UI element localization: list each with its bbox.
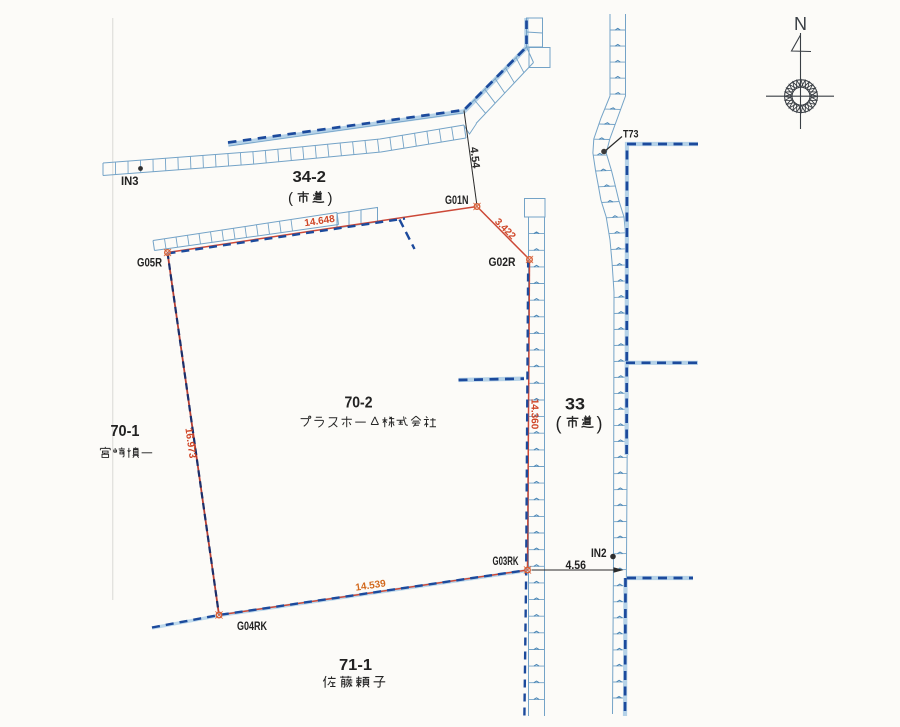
svg-text:): ) xyxy=(597,414,603,434)
svg-text:71-1: 71-1 xyxy=(339,657,372,674)
svg-text:IN2: IN2 xyxy=(591,548,607,560)
svg-text:70-1: 70-1 xyxy=(111,423,140,440)
svg-text:G02R: G02R xyxy=(489,257,517,269)
svg-text:): ) xyxy=(328,190,333,207)
svg-text:G05R: G05R xyxy=(137,258,163,270)
svg-text:(: ( xyxy=(556,414,562,434)
svg-text:G01N: G01N xyxy=(445,195,469,207)
svg-text:G03RK: G03RK xyxy=(493,556,519,568)
svg-text:14.360: 14.360 xyxy=(529,399,540,430)
svg-text:IN3: IN3 xyxy=(121,176,139,188)
svg-text:70-2: 70-2 xyxy=(345,395,373,412)
svg-text:33: 33 xyxy=(565,395,585,414)
svg-text:34-2: 34-2 xyxy=(293,169,327,186)
svg-text:4.56: 4.56 xyxy=(566,560,587,572)
svg-text:G04RK: G04RK xyxy=(237,621,268,633)
svg-text:(: ( xyxy=(288,190,293,207)
svg-text:T73: T73 xyxy=(623,129,639,141)
svg-text:N: N xyxy=(794,14,807,34)
